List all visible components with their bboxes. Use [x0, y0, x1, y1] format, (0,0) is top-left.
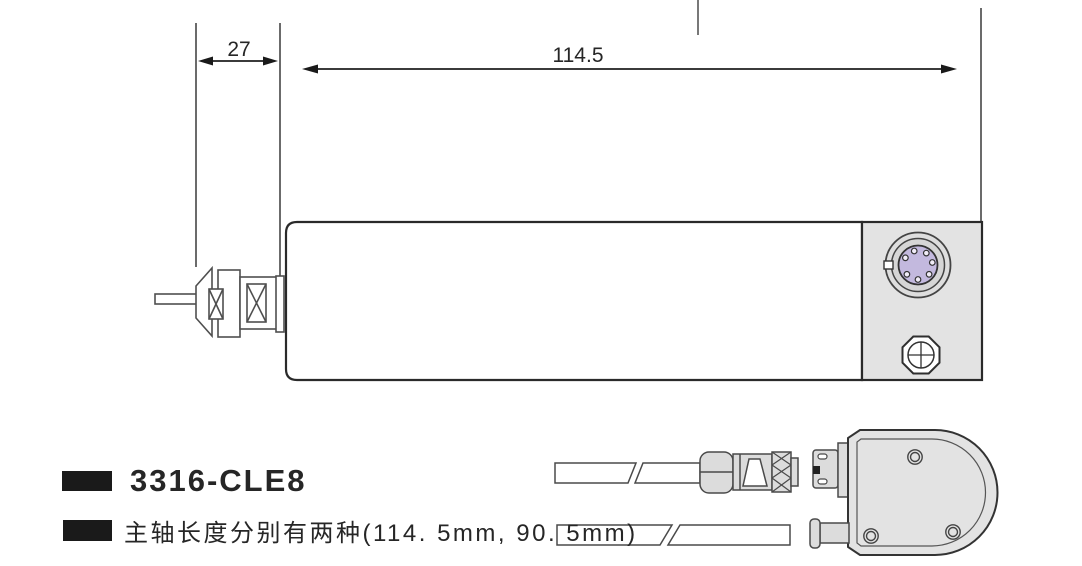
tube-segment [668, 525, 790, 545]
dimension-value-27: 27 [227, 38, 250, 61]
socket-key-tab [884, 261, 893, 269]
spindle-length-note: 主轴长度分别有两种(114. 5mm, 90. 5mm) [124, 513, 638, 548]
receptacle-key-block [813, 466, 820, 474]
receptacle-slot [818, 454, 827, 459]
screw-hole-inner [867, 532, 876, 541]
socket-pin [924, 250, 930, 256]
spindle-datasheet-drawing: 27 114.5 ∅33-0.05 [0, 0, 1082, 566]
plug-tip [791, 458, 798, 486]
front-bearing-symbol [209, 289, 223, 319]
front-plate [276, 276, 284, 332]
box-receptacle [813, 443, 848, 497]
spindle-length-note-row: 主轴长度分别有两种(114. 5mm, 90. 5mm) [63, 513, 638, 547]
screw-hole-inner [949, 528, 958, 537]
socket-pin [930, 260, 936, 266]
arrow-left-27 [198, 57, 213, 66]
receptacle-flange [838, 443, 848, 497]
power-connector-socket [884, 233, 951, 298]
air-tube-fitting [810, 519, 849, 548]
air-fitting-nut [903, 337, 940, 374]
motor-body [286, 222, 862, 380]
cable-segment [635, 463, 700, 483]
receptacle-slot [818, 479, 827, 484]
shaft [155, 294, 198, 304]
dimension-value-114-5: 114.5 [553, 44, 604, 67]
fitting-flange [810, 519, 820, 548]
socket-pin [915, 277, 921, 283]
screw-hole-inner [911, 453, 920, 462]
bullet-marker-icon [62, 471, 112, 491]
arrow-right-114-5 [941, 65, 957, 74]
arrow-left-114-5 [302, 65, 318, 74]
spindle-side-view [155, 222, 982, 380]
socket-pin [911, 248, 917, 254]
arrow-right-27 [263, 57, 278, 66]
bullet-marker-icon [63, 520, 112, 541]
fitting-tube [820, 523, 849, 543]
socket-pin [904, 272, 910, 278]
cable-segment [555, 463, 636, 483]
socket-pin [903, 255, 909, 261]
product-code-row: 3316-CLE8 [62, 464, 307, 498]
power-cable [555, 463, 700, 483]
product-code: 3316-CLE8 [130, 463, 307, 499]
connector-plug [700, 452, 798, 493]
main-bearing-symbol [247, 284, 266, 322]
spindle-nose-assembly [155, 268, 284, 337]
socket-pin [926, 272, 932, 278]
